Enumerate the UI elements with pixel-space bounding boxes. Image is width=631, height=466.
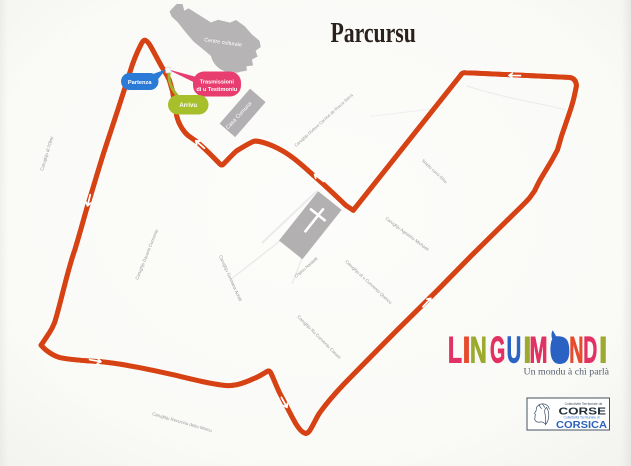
svg-text:Collectivité Territoriale de: Collectivité Territoriale de xyxy=(565,402,603,406)
svg-text:M: M xyxy=(530,330,548,371)
svg-text:I: I xyxy=(599,330,608,371)
svg-text:L: L xyxy=(448,330,462,371)
svg-text:N: N xyxy=(569,330,583,371)
svg-text:Cullettività Territuriale di: Cullettività Territuriale di xyxy=(564,415,600,419)
svg-text:D: D xyxy=(583,330,597,371)
svg-text:Un mondu à chì parlà: Un mondu à chì parlà xyxy=(524,368,610,378)
svg-text:G: G xyxy=(490,330,505,371)
svg-text:Arrivu: Arrivu xyxy=(179,103,197,109)
svg-text:Parcursu: Parcursu xyxy=(331,16,416,49)
svg-text:U: U xyxy=(507,330,522,371)
svg-text:CORSICA: CORSICA xyxy=(556,420,608,431)
svg-text:di u Testimoniu: di u Testimoniu xyxy=(196,87,237,93)
svg-text:Trasmissioni: Trasmissioni xyxy=(200,80,235,86)
svg-text:Partenza: Partenza xyxy=(128,80,153,86)
svg-text:N: N xyxy=(470,330,487,371)
